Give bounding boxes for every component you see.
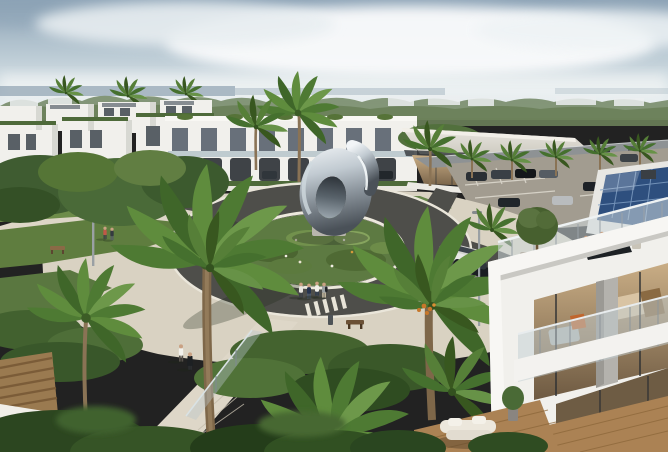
render-viewport xyxy=(0,0,668,452)
roof-unit xyxy=(641,170,656,179)
trash-bin xyxy=(328,315,333,325)
cloud xyxy=(35,2,335,46)
community-render xyxy=(0,0,668,452)
balcony-glass-strip xyxy=(168,151,414,157)
